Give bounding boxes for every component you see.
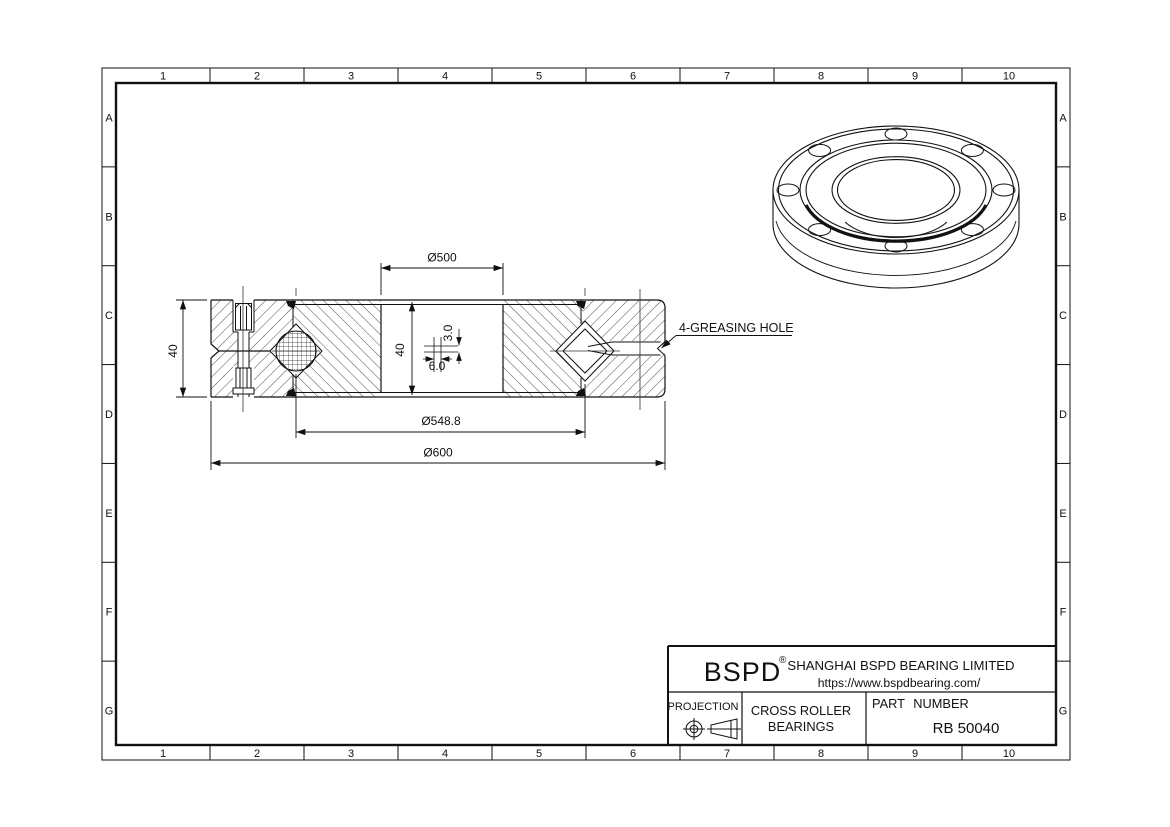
grid-col-label: 1 — [160, 71, 166, 83]
greasing-hole-callout: 4-GREASING HOLE — [662, 321, 794, 348]
product-type-line1: CROSS ROLLER — [751, 703, 851, 718]
grid-col-label: 5 — [536, 71, 542, 83]
dim-bore-label: Ø500 — [427, 251, 457, 265]
grid-row-label: B — [105, 211, 112, 223]
company-name: SHANGHAI BSPD BEARING LIMITED — [787, 658, 1014, 673]
bore-edge — [838, 160, 955, 221]
title-block: BSPD ® SHANGHAI BSPD BEARING LIMITED htt… — [668, 646, 1056, 745]
dim-od-label: Ø600 — [423, 446, 453, 460]
grid-row-label: C — [105, 310, 113, 322]
registered-mark-icon: ® — [779, 655, 787, 666]
technical-drawing-canvas: 1122334455667788991010AABBCCDDEEFFGG — [0, 0, 1170, 827]
grid-col-label: 9 — [912, 748, 918, 760]
grid-row-label: E — [1059, 508, 1066, 520]
grid-col-label: 1 — [160, 748, 166, 760]
drawing-sheet: 1122334455667788991010AABBCCDDEEFFGG — [0, 0, 1170, 827]
grid-col-label: 4 — [442, 748, 448, 760]
grid-col-label: 9 — [912, 71, 918, 83]
grid-row-label: G — [105, 706, 114, 718]
grid-row-label: D — [1059, 409, 1067, 421]
grid-row-label: B — [1059, 211, 1066, 223]
grid-col-label: 10 — [1003, 71, 1015, 83]
grid-col-label: 6 — [630, 71, 636, 83]
grease-hole-detail: 3.0 6.0 — [423, 324, 459, 373]
grid-col-label: 10 — [1003, 748, 1015, 760]
company-website: https://www.bspdbearing.com/ — [818, 676, 981, 690]
grid-col-label: 8 — [818, 748, 824, 760]
grid-col-label: 2 — [254, 748, 260, 760]
grid-col-label: 3 — [348, 748, 354, 760]
grid-col-label: 6 — [630, 748, 636, 760]
company-logo: BSPD — [704, 657, 782, 687]
grid-row-label: D — [105, 409, 113, 421]
grid-row-label: E — [105, 508, 112, 520]
dim-pitch-label: Ø548.8 — [421, 414, 461, 428]
dim-grease-offset-label: 3.0 — [441, 324, 455, 341]
dim-width-inner: 40 — [393, 302, 412, 395]
dim-bore: Ø500 — [381, 251, 503, 296]
grid-col-label: 5 — [536, 748, 542, 760]
grid-row-label: A — [1059, 112, 1067, 124]
greasing-hole-label: 4-GREASING HOLE — [679, 321, 794, 335]
dim-width-inner-label: 40 — [393, 343, 407, 357]
grid-row-label: F — [106, 607, 113, 619]
section-view — [211, 286, 665, 412]
grid-reference-labels: 1122334455667788991010AABBCCDDEEFFGG — [102, 68, 1070, 760]
projection-label: PROJECTION — [668, 701, 739, 713]
grid-row-label: A — [105, 112, 113, 124]
bore-depth-edge — [845, 222, 947, 238]
part-number-label: PART NUMBER — [872, 696, 969, 711]
sheet-frame — [102, 68, 1070, 760]
first-angle-projection-icon — [683, 718, 741, 740]
grid-row-label: F — [1060, 607, 1067, 619]
grid-col-label: 2 — [254, 71, 260, 83]
isometric-view — [773, 126, 1019, 288]
grid-row-label: G — [1059, 706, 1068, 718]
part-number-value: RB 50040 — [933, 720, 1000, 737]
grid-col-label: 8 — [818, 71, 824, 83]
dim-od: Ø600 — [211, 401, 665, 470]
grid-col-label: 4 — [442, 71, 448, 83]
dim-grease-dia-label: 6.0 — [429, 359, 446, 373]
dim-width: 40 — [166, 300, 207, 397]
dim-width-label: 40 — [166, 344, 180, 358]
product-type-line2: BEARINGS — [768, 719, 834, 734]
grid-col-label: 3 — [348, 71, 354, 83]
grid-col-label: 7 — [724, 748, 730, 760]
grid-col-label: 7 — [724, 71, 730, 83]
grid-row-label: C — [1059, 310, 1067, 322]
outer-border — [102, 68, 1070, 760]
